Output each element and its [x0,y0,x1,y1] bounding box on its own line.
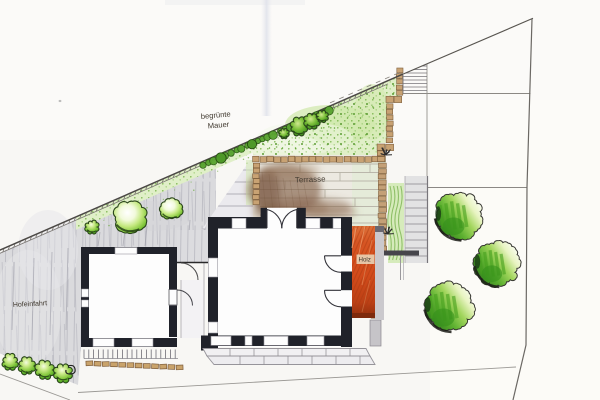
svg-text:Holz: Holz [359,257,371,264]
svg-text:Terrasse: Terrasse [295,174,326,184]
svg-text:Mauer: Mauer [207,120,230,131]
